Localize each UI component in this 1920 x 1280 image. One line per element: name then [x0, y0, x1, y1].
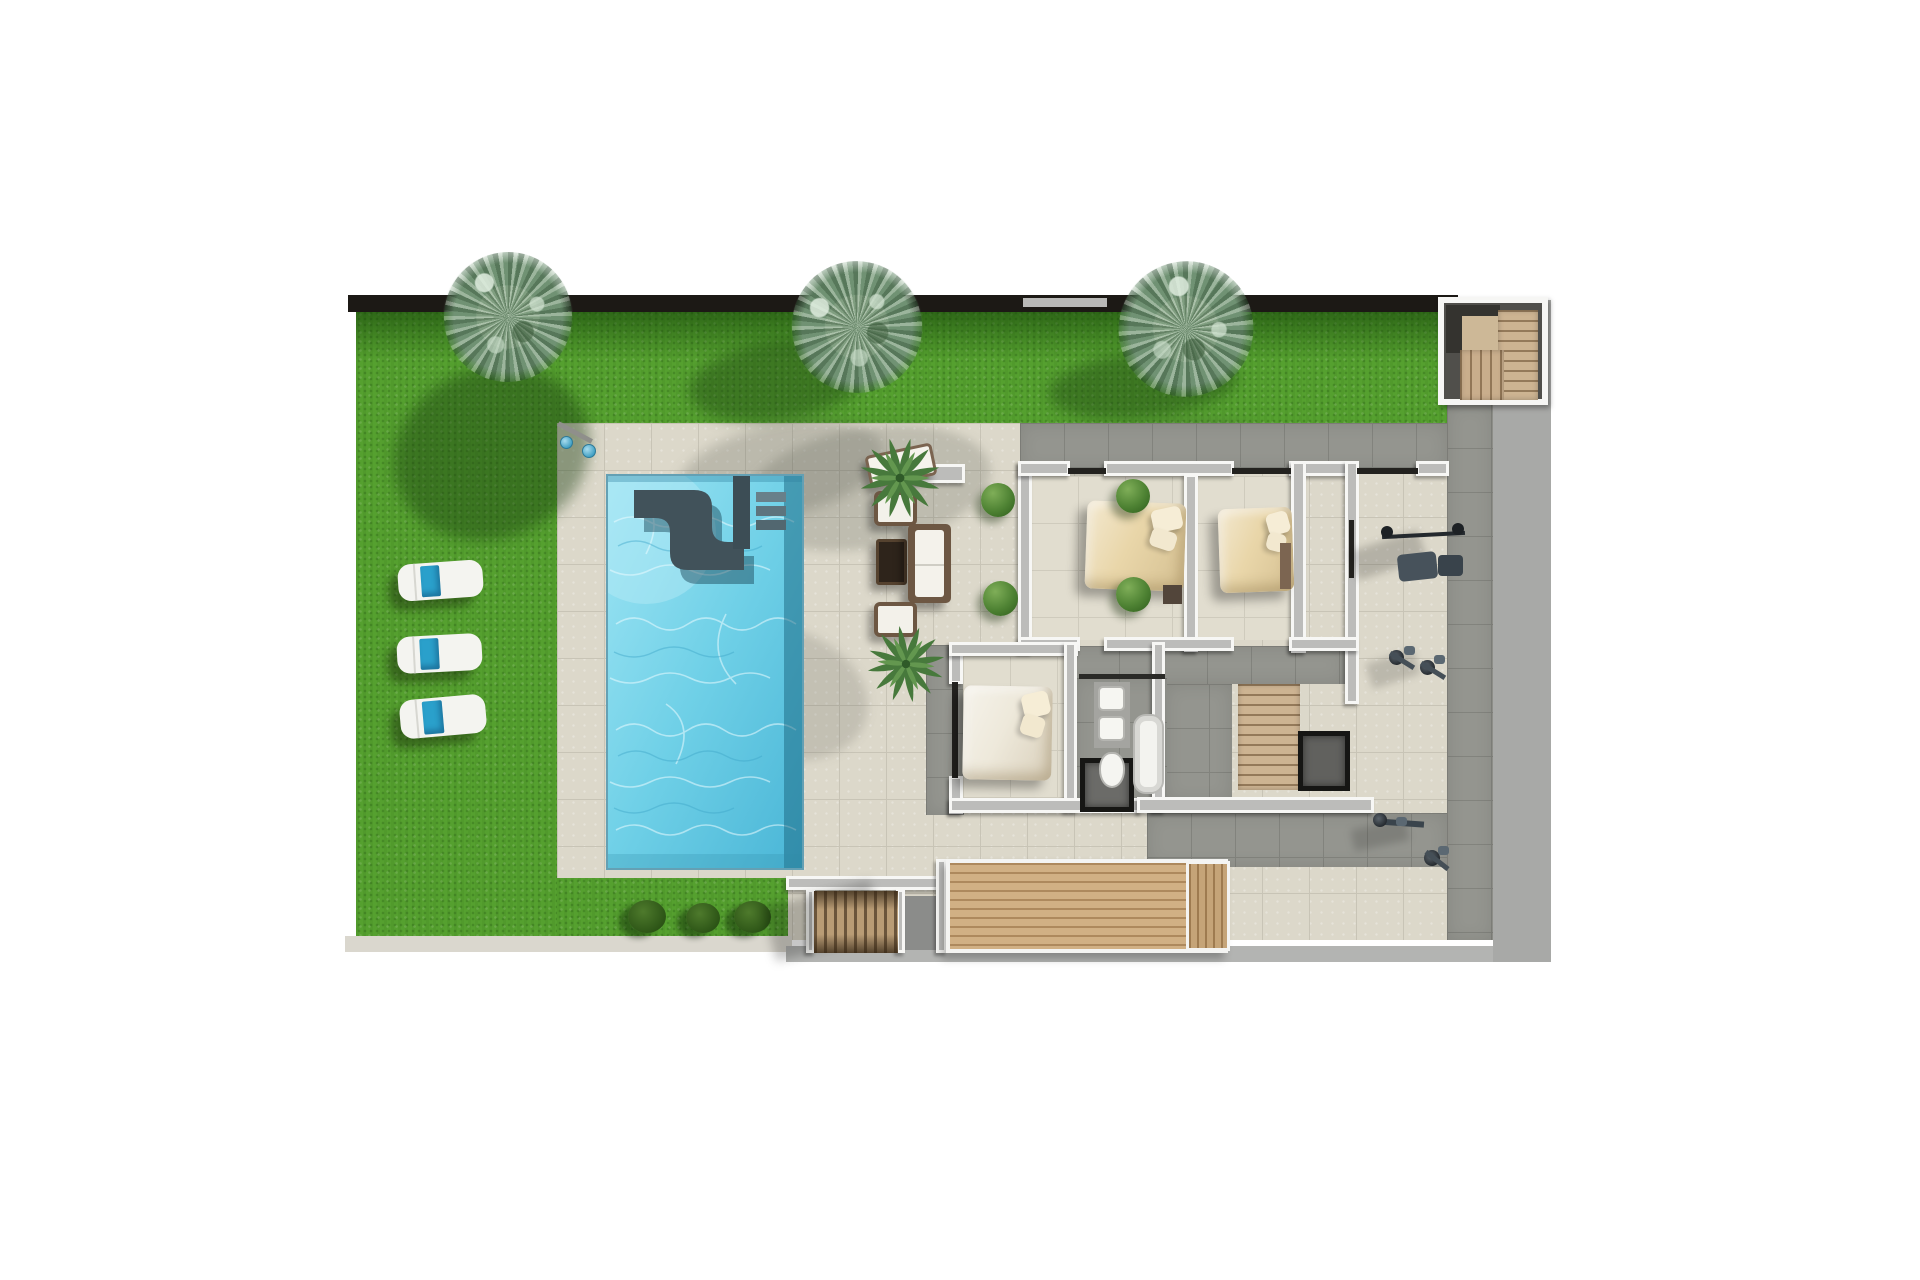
wall-bedroom1-west [1018, 461, 1032, 653]
sun-lounger-2 [396, 633, 483, 674]
wall-mid-b [1104, 637, 1234, 651]
coffee-table [876, 539, 907, 585]
stairbox-flight-south [1460, 350, 1504, 400]
pool-shade-east [784, 474, 804, 870]
wall-north-d [1416, 461, 1449, 476]
door-bathroom-north [1079, 674, 1165, 679]
garden-bush-1 [628, 900, 666, 933]
sun-lounger-1 [397, 559, 484, 602]
gym-bench-seat [1438, 555, 1463, 576]
nightstand-bedroom1 [1163, 585, 1182, 604]
exercise-bike-2-seat [1434, 655, 1445, 664]
wall-gym-west [1345, 461, 1359, 704]
corridor-dark-tile [1165, 684, 1232, 802]
bathtub [1133, 714, 1164, 794]
slider-gym-north [1357, 468, 1418, 474]
boxwood-shrub-3 [1116, 479, 1150, 513]
wall-bathroom-west [1064, 642, 1077, 812]
toilet [1099, 752, 1125, 788]
outdoor-shower-head-1 [560, 436, 573, 449]
slider-bedroom3-west [952, 682, 958, 778]
exercise-bike-1-seat [1404, 646, 1415, 655]
perimeter-wall-light-segment [1023, 298, 1107, 307]
curb-bottom-left [345, 936, 792, 952]
stairbox-flight-east [1498, 310, 1538, 400]
wicker-sofa [908, 524, 951, 603]
slider-bedroom1-north [1068, 468, 1106, 474]
boxwood-shrub-2 [983, 581, 1018, 616]
gym-plate-left [1381, 526, 1393, 538]
exercise-bike-3-seat [1438, 846, 1449, 855]
stair-void [1298, 731, 1350, 791]
gym-plate-right [1452, 523, 1464, 535]
wall-bedroom3-north [949, 642, 1078, 656]
floor-plan-rendering [0, 0, 1920, 1280]
outdoor-shower-head-2 [582, 444, 596, 458]
rowing-machine-wheel [1373, 813, 1387, 827]
slider-bedroom2-north [1232, 468, 1291, 474]
pool-entry-column [733, 475, 750, 549]
wall-north-a [1018, 461, 1070, 476]
bed-bedroom3 [962, 685, 1053, 781]
wall-north-b [1104, 461, 1234, 476]
window-gym-west [1349, 520, 1354, 578]
stairbox-landing [1462, 316, 1498, 352]
boxwood-shrub-4 [1116, 577, 1151, 612]
side-terrace-dark-tile [1447, 404, 1493, 940]
entrance-deck-ledge [1186, 861, 1230, 951]
wall-south-right [1137, 797, 1374, 813]
boxwood-shrub-1 [981, 483, 1015, 517]
wall-mid-c [1289, 637, 1359, 651]
swimming-pool [606, 474, 804, 870]
wall-bedrooms-divider [1184, 474, 1198, 652]
sink-1 [1098, 686, 1125, 711]
garden-bush-2 [686, 903, 720, 933]
gym-bench [1397, 551, 1439, 582]
rowing-machine-seat [1396, 817, 1407, 826]
exterior-stair-west [814, 891, 898, 953]
pool-water [606, 474, 804, 870]
sun-lounger-3 [398, 693, 487, 739]
sink-2 [1098, 716, 1125, 741]
pool-steps [756, 492, 786, 530]
interior-staircase [1238, 684, 1300, 790]
dresser-bedroom2 [1280, 543, 1291, 589]
